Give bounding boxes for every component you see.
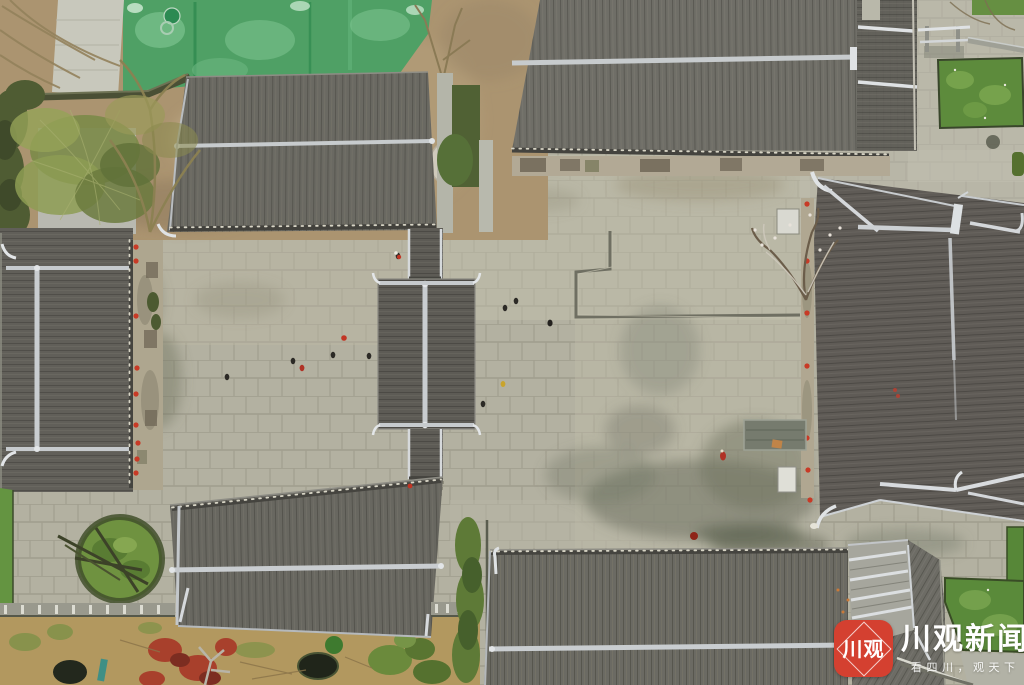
red-lantern — [341, 335, 347, 341]
west-hall-wall — [133, 240, 163, 490]
hedge-circle — [78, 517, 162, 601]
lawn-top-right — [938, 58, 1024, 128]
building-south-hall — [169, 477, 444, 637]
watermark-text-block: 川观新闻 看四川，观天下 — [901, 623, 1024, 675]
white-bag — [810, 523, 818, 529]
watermark: 川观 川观新闻 看四川，观天下 — [834, 620, 1024, 677]
aerial-photo-stage: 川观 川观新闻 看四川，观天下 — [0, 0, 1024, 685]
northeast-hall-wall — [512, 156, 890, 176]
bush-right-edge — [1012, 152, 1024, 176]
brand-name: 川观新闻 — [901, 623, 1024, 656]
shrub-blob — [437, 134, 473, 186]
grass-strip-left — [0, 488, 13, 603]
red-lantern-ball — [690, 532, 698, 540]
utility-box — [778, 467, 796, 492]
boundary-wall-strip-2 — [479, 140, 493, 232]
stone-slab-path — [862, 0, 880, 20]
lawn-top-corner — [972, 0, 1024, 15]
building-west-hall — [0, 228, 133, 492]
rock-cluster — [53, 660, 87, 684]
brand-tagline: 看四川，观天下 — [901, 659, 1024, 675]
building-southeast-hall — [484, 548, 868, 685]
stone-stele — [777, 209, 799, 234]
ground-blotch — [986, 135, 1000, 149]
chuanguan-logo: 川观 — [834, 620, 893, 677]
building-main-hall — [812, 172, 1024, 528]
logo-characters: 川观 — [843, 639, 885, 659]
round-bush — [325, 636, 343, 654]
building-northeast-hall — [512, 0, 917, 156]
garden-railing-west — [0, 603, 175, 617]
main-hall-wall — [801, 198, 814, 498]
visitor-in-red — [300, 365, 305, 371]
hall-front-steps — [744, 420, 806, 450]
visitor-in-red — [720, 452, 726, 461]
garden-pond — [298, 653, 338, 679]
visitor-in-yellow — [501, 381, 506, 387]
building-north-hall — [158, 72, 437, 236]
stone-path-top-left — [52, 0, 124, 96]
aerial-photo-scene — [0, 0, 1024, 685]
